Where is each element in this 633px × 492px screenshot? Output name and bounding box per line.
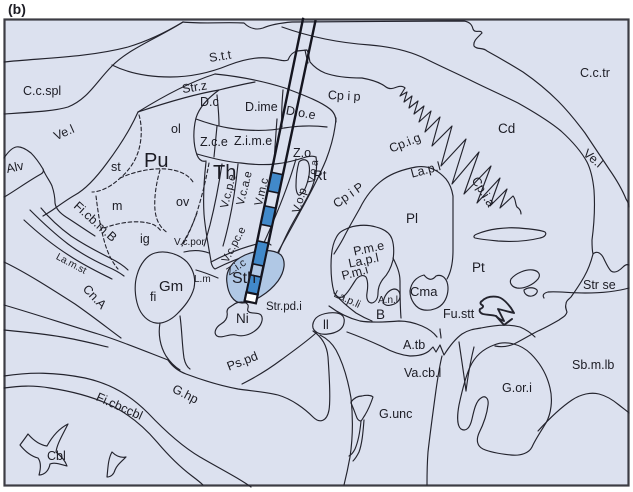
svg-text:Z.c.e: Z.c.e <box>200 135 228 149</box>
svg-text:C.c.spl: C.c.spl <box>23 84 61 98</box>
svg-text:Pu: Pu <box>144 150 168 172</box>
svg-text:L.m: L.m <box>194 274 211 285</box>
svg-text:fi: fi <box>150 290 156 304</box>
svg-text:G.or.i: G.or.i <box>502 381 532 395</box>
svg-text:st: st <box>111 160 121 174</box>
svg-text:Cd: Cd <box>498 121 515 136</box>
svg-text:Gm: Gm <box>159 278 183 295</box>
svg-text:m: m <box>112 199 122 213</box>
svg-text:Z.i.m.e: Z.i.m.e <box>234 134 272 148</box>
svg-text:Z.o: Z.o <box>293 146 311 160</box>
svg-text:Fu.stt: Fu.stt <box>443 307 475 321</box>
svg-text:G.unc: G.unc <box>379 407 412 421</box>
svg-text:Ni: Ni <box>236 311 249 326</box>
svg-text:C.c.tr: C.c.tr <box>580 66 610 80</box>
svg-text:ig: ig <box>140 232 150 246</box>
svg-text:D.ime: D.ime <box>245 100 278 114</box>
svg-text:ov: ov <box>176 195 190 209</box>
svg-text:Pl: Pl <box>406 211 418 226</box>
svg-text:Va.cb.l: Va.cb.l <box>404 366 441 380</box>
svg-text:Cbl: Cbl <box>47 449 66 463</box>
svg-text:Str.pd.i: Str.pd.i <box>266 301 302 313</box>
svg-text:A.n.l: A.n.l <box>378 295 398 306</box>
svg-text:Pt: Pt <box>472 260 485 275</box>
svg-text:Cp i p: Cp i p <box>328 88 361 104</box>
svg-text:B: B <box>376 307 385 322</box>
svg-text:A.tb: A.tb <box>403 338 425 352</box>
svg-text:D.c: D.c <box>200 95 219 109</box>
svg-text:(b): (b) <box>8 1 26 17</box>
svg-text:Cma: Cma <box>410 284 438 299</box>
svg-text:Str se: Str se <box>583 278 616 292</box>
svg-text:Sth: Sth <box>232 270 256 287</box>
svg-text:ol: ol <box>171 122 181 136</box>
svg-text:ll: ll <box>323 317 329 332</box>
svg-text:Sb.m.lb: Sb.m.lb <box>572 358 614 372</box>
svg-text:V.c.por: V.c.por <box>174 237 205 248</box>
